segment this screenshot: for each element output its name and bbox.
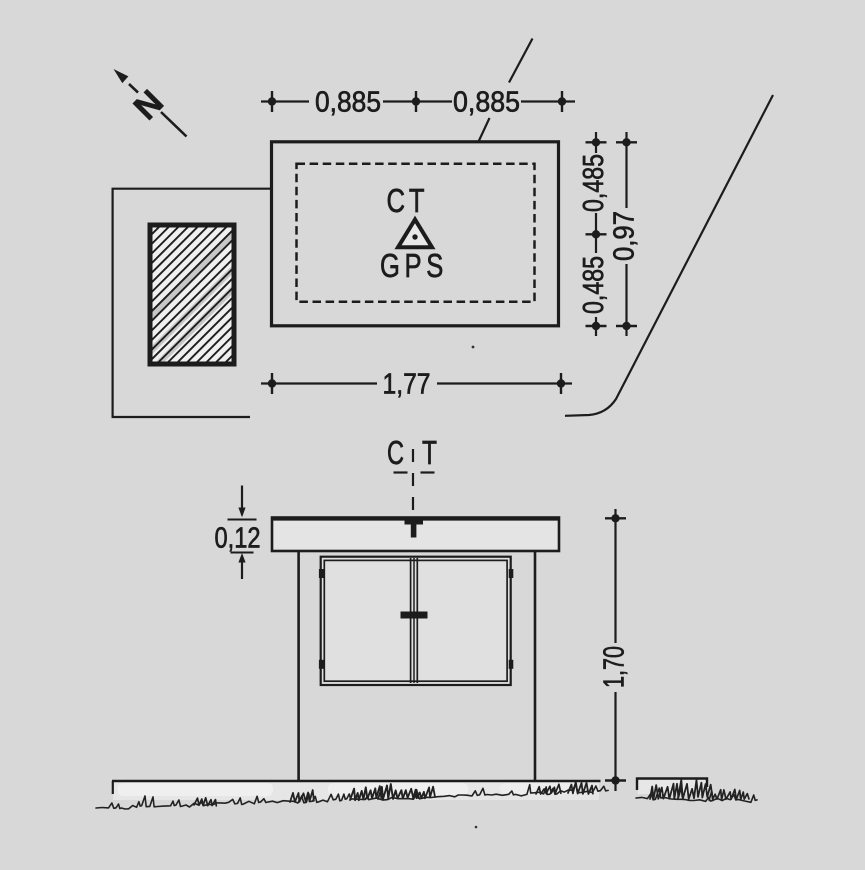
svg-text:1,77: 1,77 (383, 369, 431, 401)
svg-text:C: C (387, 434, 404, 471)
svg-text:0,485: 0,485 (578, 154, 610, 212)
svg-text:0,12: 0,12 (215, 523, 261, 555)
svg-text:0,885: 0,885 (453, 87, 520, 119)
svg-text:1,70: 1,70 (599, 646, 631, 688)
svg-text:0,485: 0,485 (578, 256, 610, 314)
svg-text:GPS: GPS (380, 247, 448, 284)
svg-text:T: T (422, 434, 437, 471)
svg-text:0,97: 0,97 (609, 211, 641, 261)
svg-text:CT: CT (387, 182, 429, 219)
svg-text:0,885: 0,885 (315, 87, 381, 119)
